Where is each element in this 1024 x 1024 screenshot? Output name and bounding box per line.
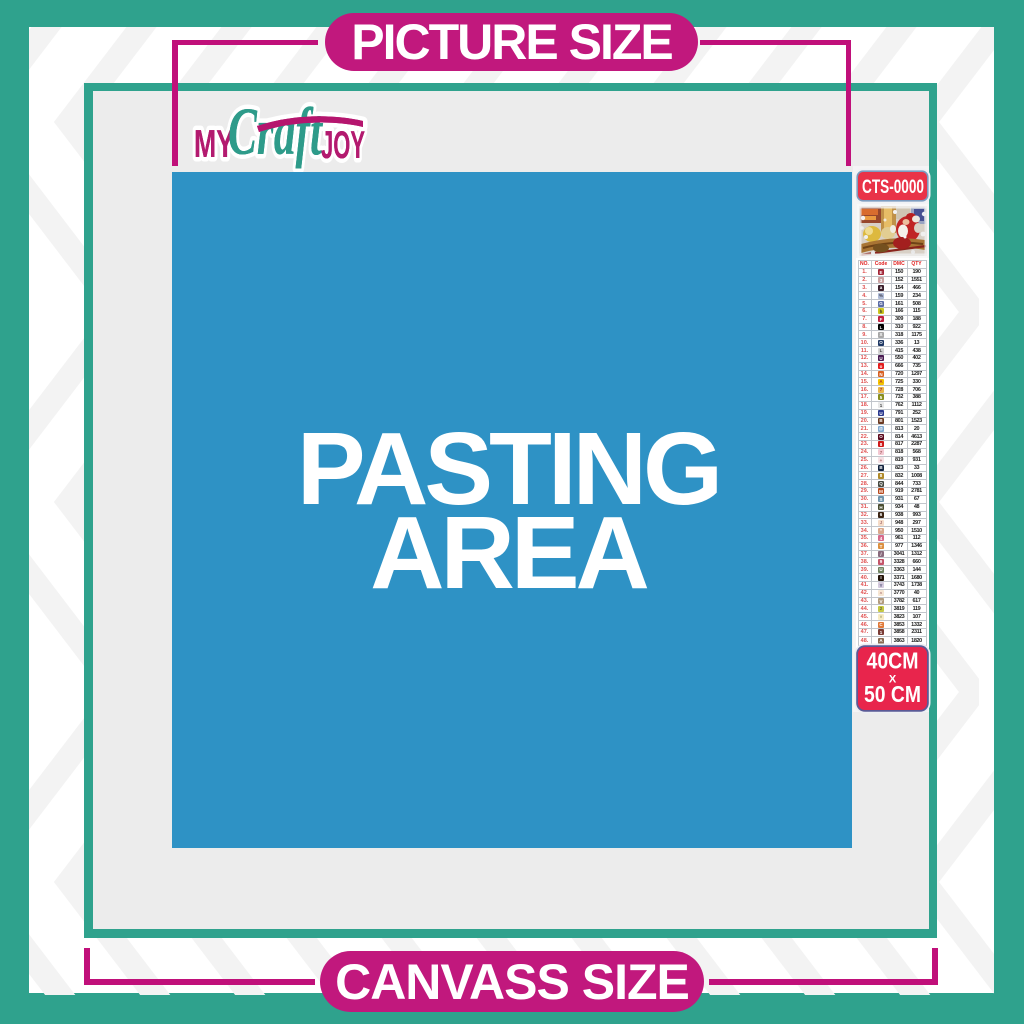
svg-text:JOY: JOY (321, 124, 365, 167)
svg-text:40CM: 40CM (867, 648, 919, 674)
svg-text:Craft: Craft (228, 94, 323, 169)
svg-text:CTS-0000: CTS-0000 (862, 177, 924, 198)
svg-text:50 CM: 50 CM (864, 681, 921, 707)
